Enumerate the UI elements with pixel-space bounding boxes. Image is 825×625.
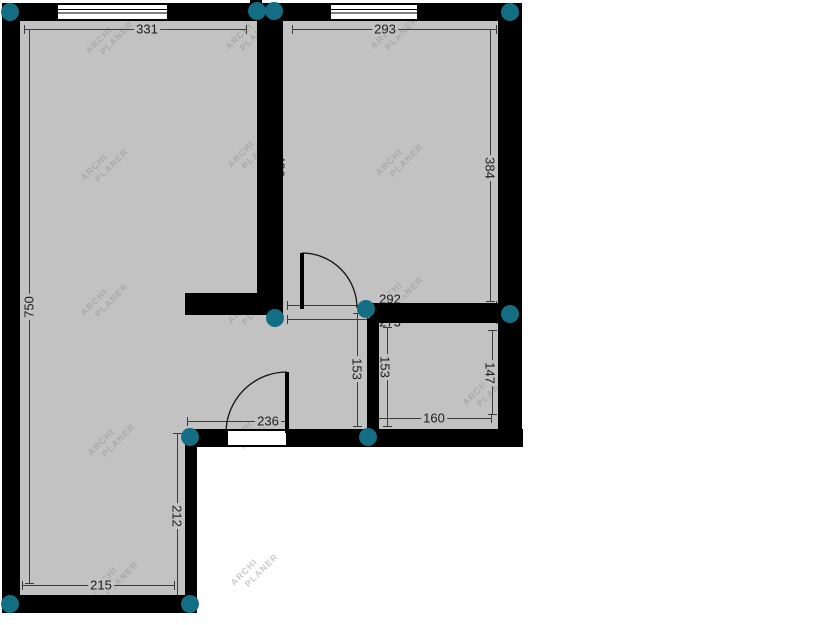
corner-handle[interactable] (181, 595, 199, 613)
door-arcs (0, 0, 825, 625)
corner-handle[interactable] (1, 595, 19, 613)
door-swing-hall-leaf[interactable] (300, 253, 304, 309)
corner-handle[interactable] (357, 300, 375, 318)
floorplan-canvas: ARCHIPLANERARCHIPLANERARCHIPLANERARCHIPL… (0, 0, 825, 625)
corner-handle[interactable] (501, 3, 519, 21)
door-swing-bottom-arc[interactable] (226, 372, 287, 433)
corner-handle[interactable] (359, 428, 377, 446)
corner-handle[interactable] (266, 309, 284, 327)
corner-handle[interactable] (265, 2, 283, 20)
corner-handle[interactable] (181, 428, 199, 446)
door-swing-bottom-leaf[interactable] (285, 372, 289, 433)
corner-handle[interactable] (248, 2, 266, 20)
door-swing-hall-arc[interactable] (302, 253, 357, 308)
corner-handle[interactable] (501, 305, 519, 323)
corner-handle[interactable] (1, 3, 19, 21)
